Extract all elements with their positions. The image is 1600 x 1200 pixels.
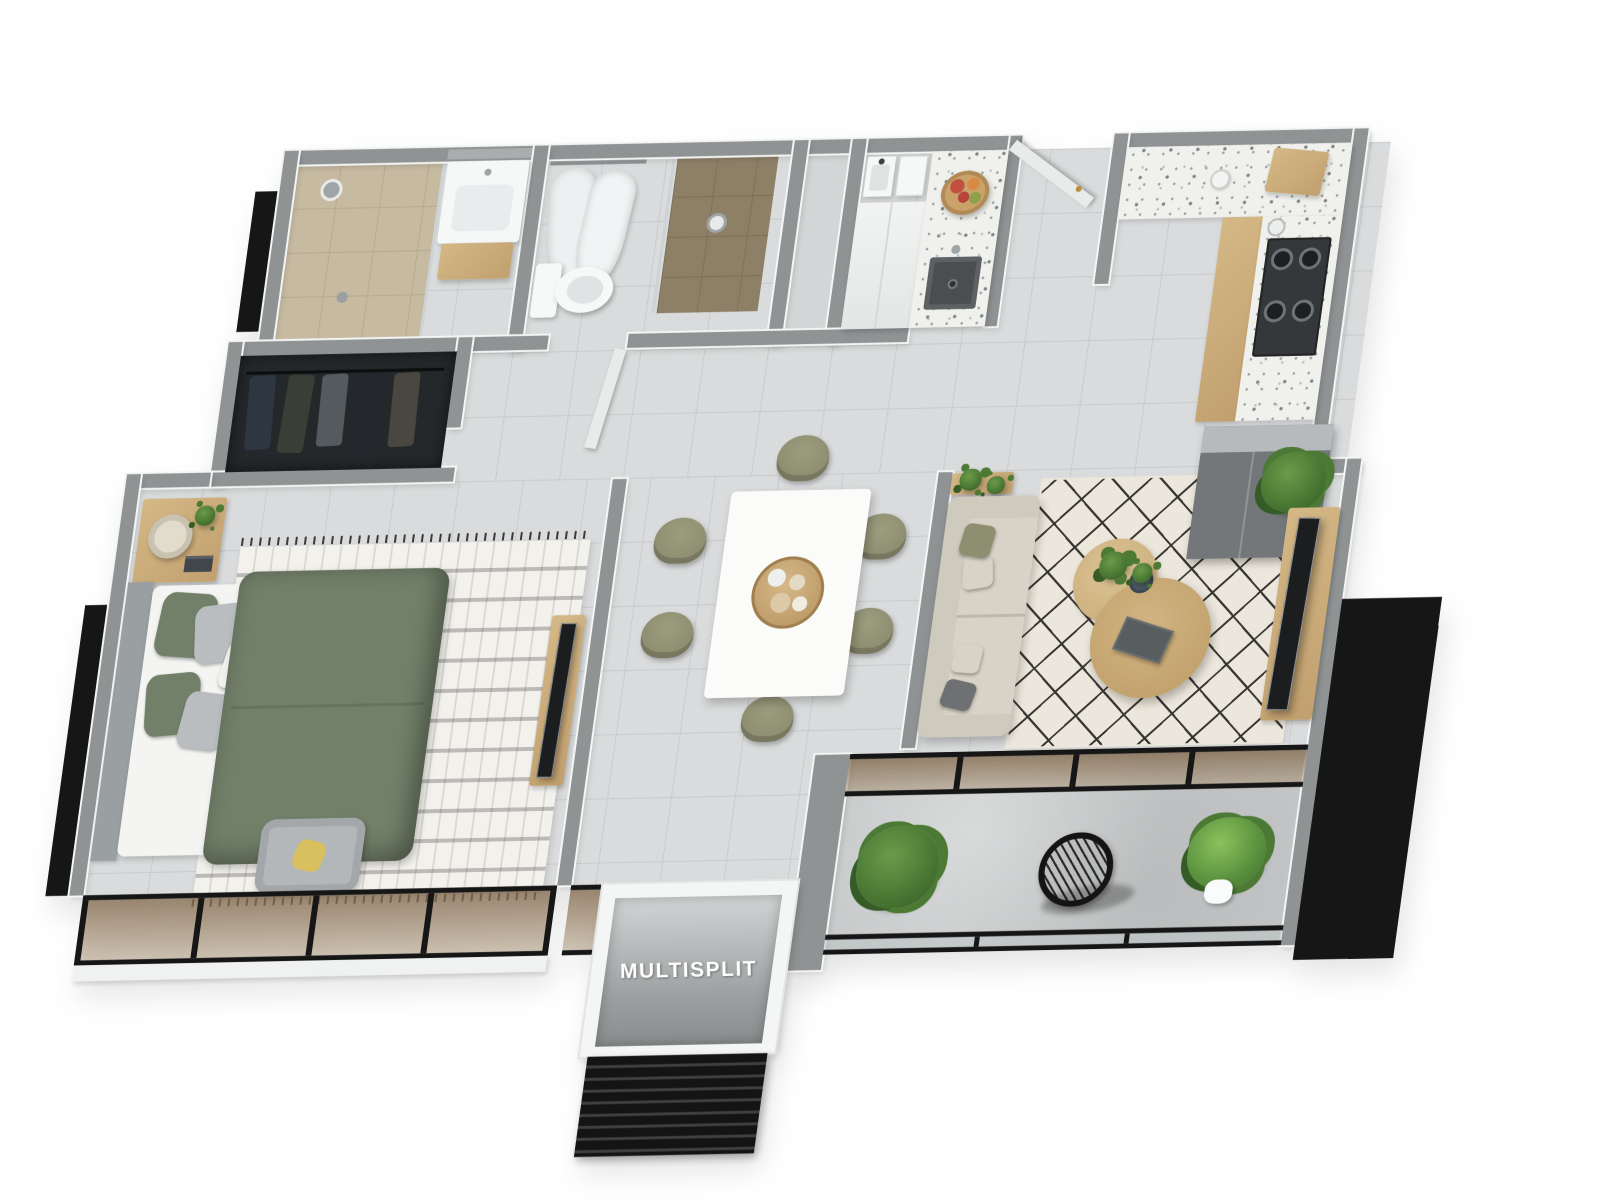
washing-machine [895, 155, 928, 196]
sofa-cushion-seam [957, 614, 1025, 618]
vanity-mirror [447, 148, 532, 160]
shower-floor [273, 162, 443, 342]
window-mullion [190, 898, 204, 958]
sofa-pillow-zigzag [963, 556, 993, 591]
door-mullion [1185, 752, 1195, 784]
hanging-clothes [276, 374, 315, 453]
burner-icon [1270, 248, 1295, 271]
sofa-armrest [946, 495, 1041, 519]
hanging-clothes [387, 372, 421, 448]
window-mullion [305, 895, 319, 955]
toilet-seat [565, 275, 605, 304]
floorplan-scene: MULTISPLIT [0, 0, 1600, 1200]
multisplit-label: MULTISPLIT [604, 895, 774, 1046]
decor-ball [788, 574, 806, 590]
books-stack [183, 556, 213, 573]
decor-ball [769, 592, 792, 612]
apartment-plan: MULTISPLIT [111, 128, 1374, 1055]
vanity-faucet-icon [484, 169, 492, 176]
window-mullion [420, 893, 434, 953]
armchair-cushion [289, 838, 328, 874]
balustrade-post [974, 937, 980, 947]
fridge-top-face [1201, 424, 1335, 453]
door-mullion [1069, 754, 1079, 786]
hanging-clothes [244, 375, 276, 451]
bedroom-windows [74, 885, 558, 965]
vanity-cabinet [437, 242, 514, 280]
vanity-counter [437, 160, 530, 244]
closet-interior [225, 351, 457, 472]
laundry-door-seam [874, 202, 893, 328]
hanging-clothes [347, 373, 388, 454]
vanity-basin [450, 184, 514, 231]
sofa-armrest [916, 714, 1011, 738]
ac-enclosure-interior: MULTISPLIT [595, 895, 782, 1047]
decor-ball [767, 569, 787, 587]
nightstand [132, 497, 228, 583]
kitchenette-sink [923, 256, 982, 309]
sink-drain-icon [947, 279, 958, 289]
balustrade-post [1123, 933, 1129, 943]
decor-ball [791, 596, 808, 611]
sofa-pillow-zigzag [950, 644, 984, 674]
centerpiece-tray [747, 556, 829, 630]
burner-icon [1298, 247, 1323, 270]
fridge-door-seam [1238, 452, 1255, 558]
laundry-tub [863, 156, 896, 197]
burner-icon [1290, 299, 1315, 322]
door-mullion [953, 757, 963, 789]
ac-enclosure: MULTISPLIT [580, 880, 799, 1057]
table-lamp [145, 514, 195, 559]
succulent-plant [194, 505, 217, 525]
dining-table [703, 489, 871, 699]
bedroom-armchair [253, 817, 367, 893]
laundry-tub-basin [869, 164, 891, 190]
cutting-board [1264, 147, 1329, 196]
burner-icon [1262, 300, 1287, 323]
hanging-clothes [316, 373, 349, 447]
ac-louver-vent [574, 1053, 768, 1157]
duvet-seam [230, 702, 424, 709]
